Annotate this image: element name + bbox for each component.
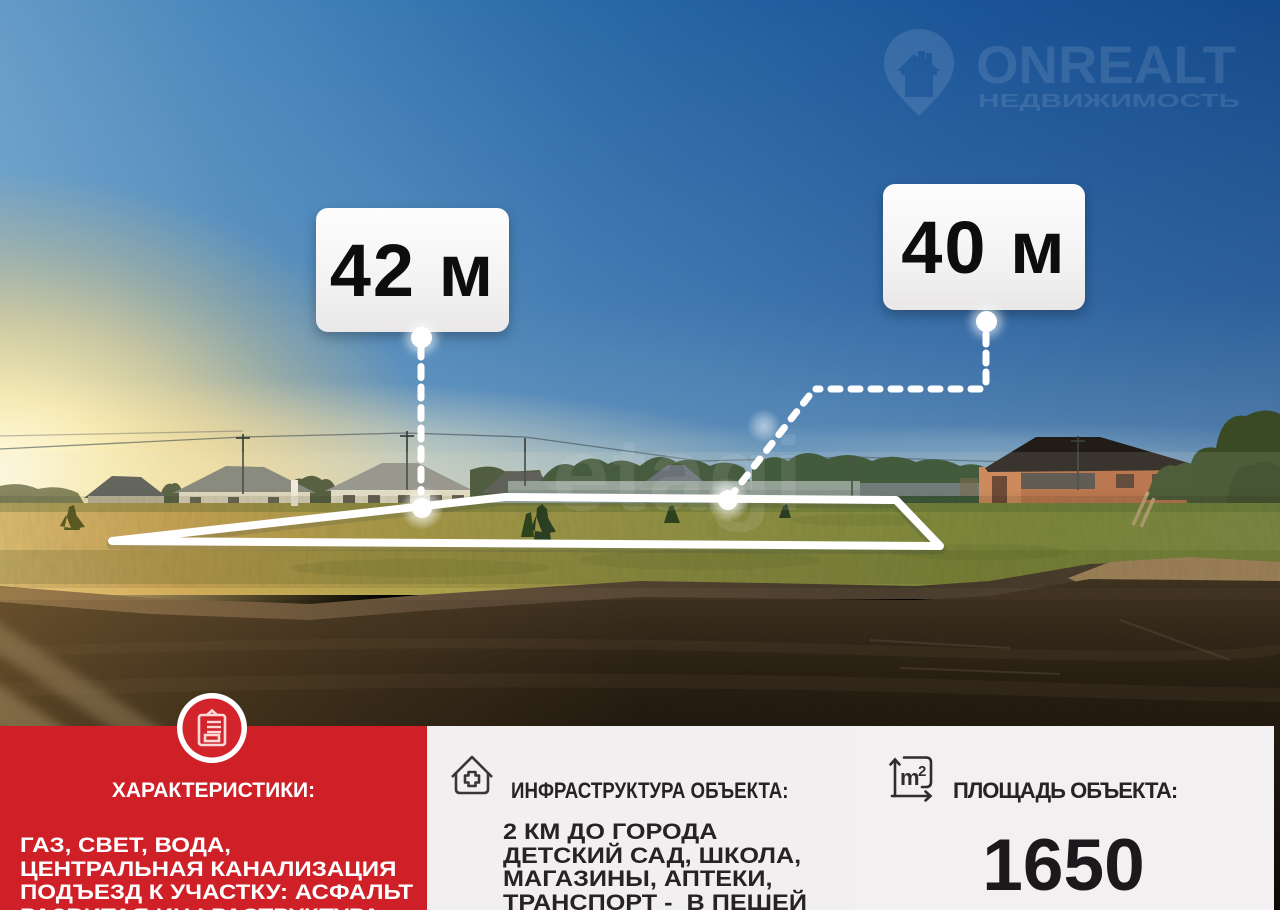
svg-text:m: m bbox=[900, 765, 920, 790]
svg-text:НЕДВИЖИМОСТЬ: НЕДВИЖИМОСТЬ bbox=[978, 91, 1240, 111]
svg-text:2: 2 bbox=[918, 763, 926, 780]
svg-text:ONREALT: ONREALT bbox=[976, 36, 1236, 95]
